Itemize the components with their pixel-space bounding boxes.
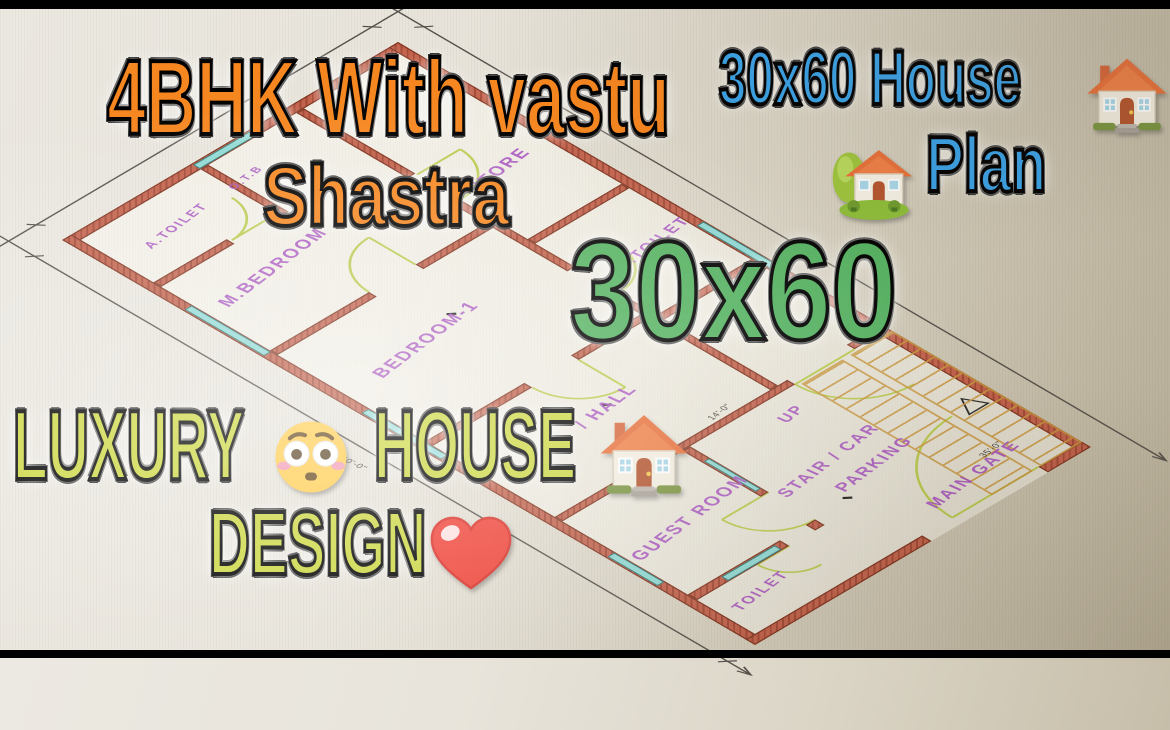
letterbox-bar-bottom: [0, 650, 1170, 658]
photo-vignette: [0, 0, 1170, 658]
letterbox-bar-top: [0, 0, 1170, 9]
thumbnail-page: { "overlays": { "title": { "line1": "4BH…: [0, 0, 1170, 658]
